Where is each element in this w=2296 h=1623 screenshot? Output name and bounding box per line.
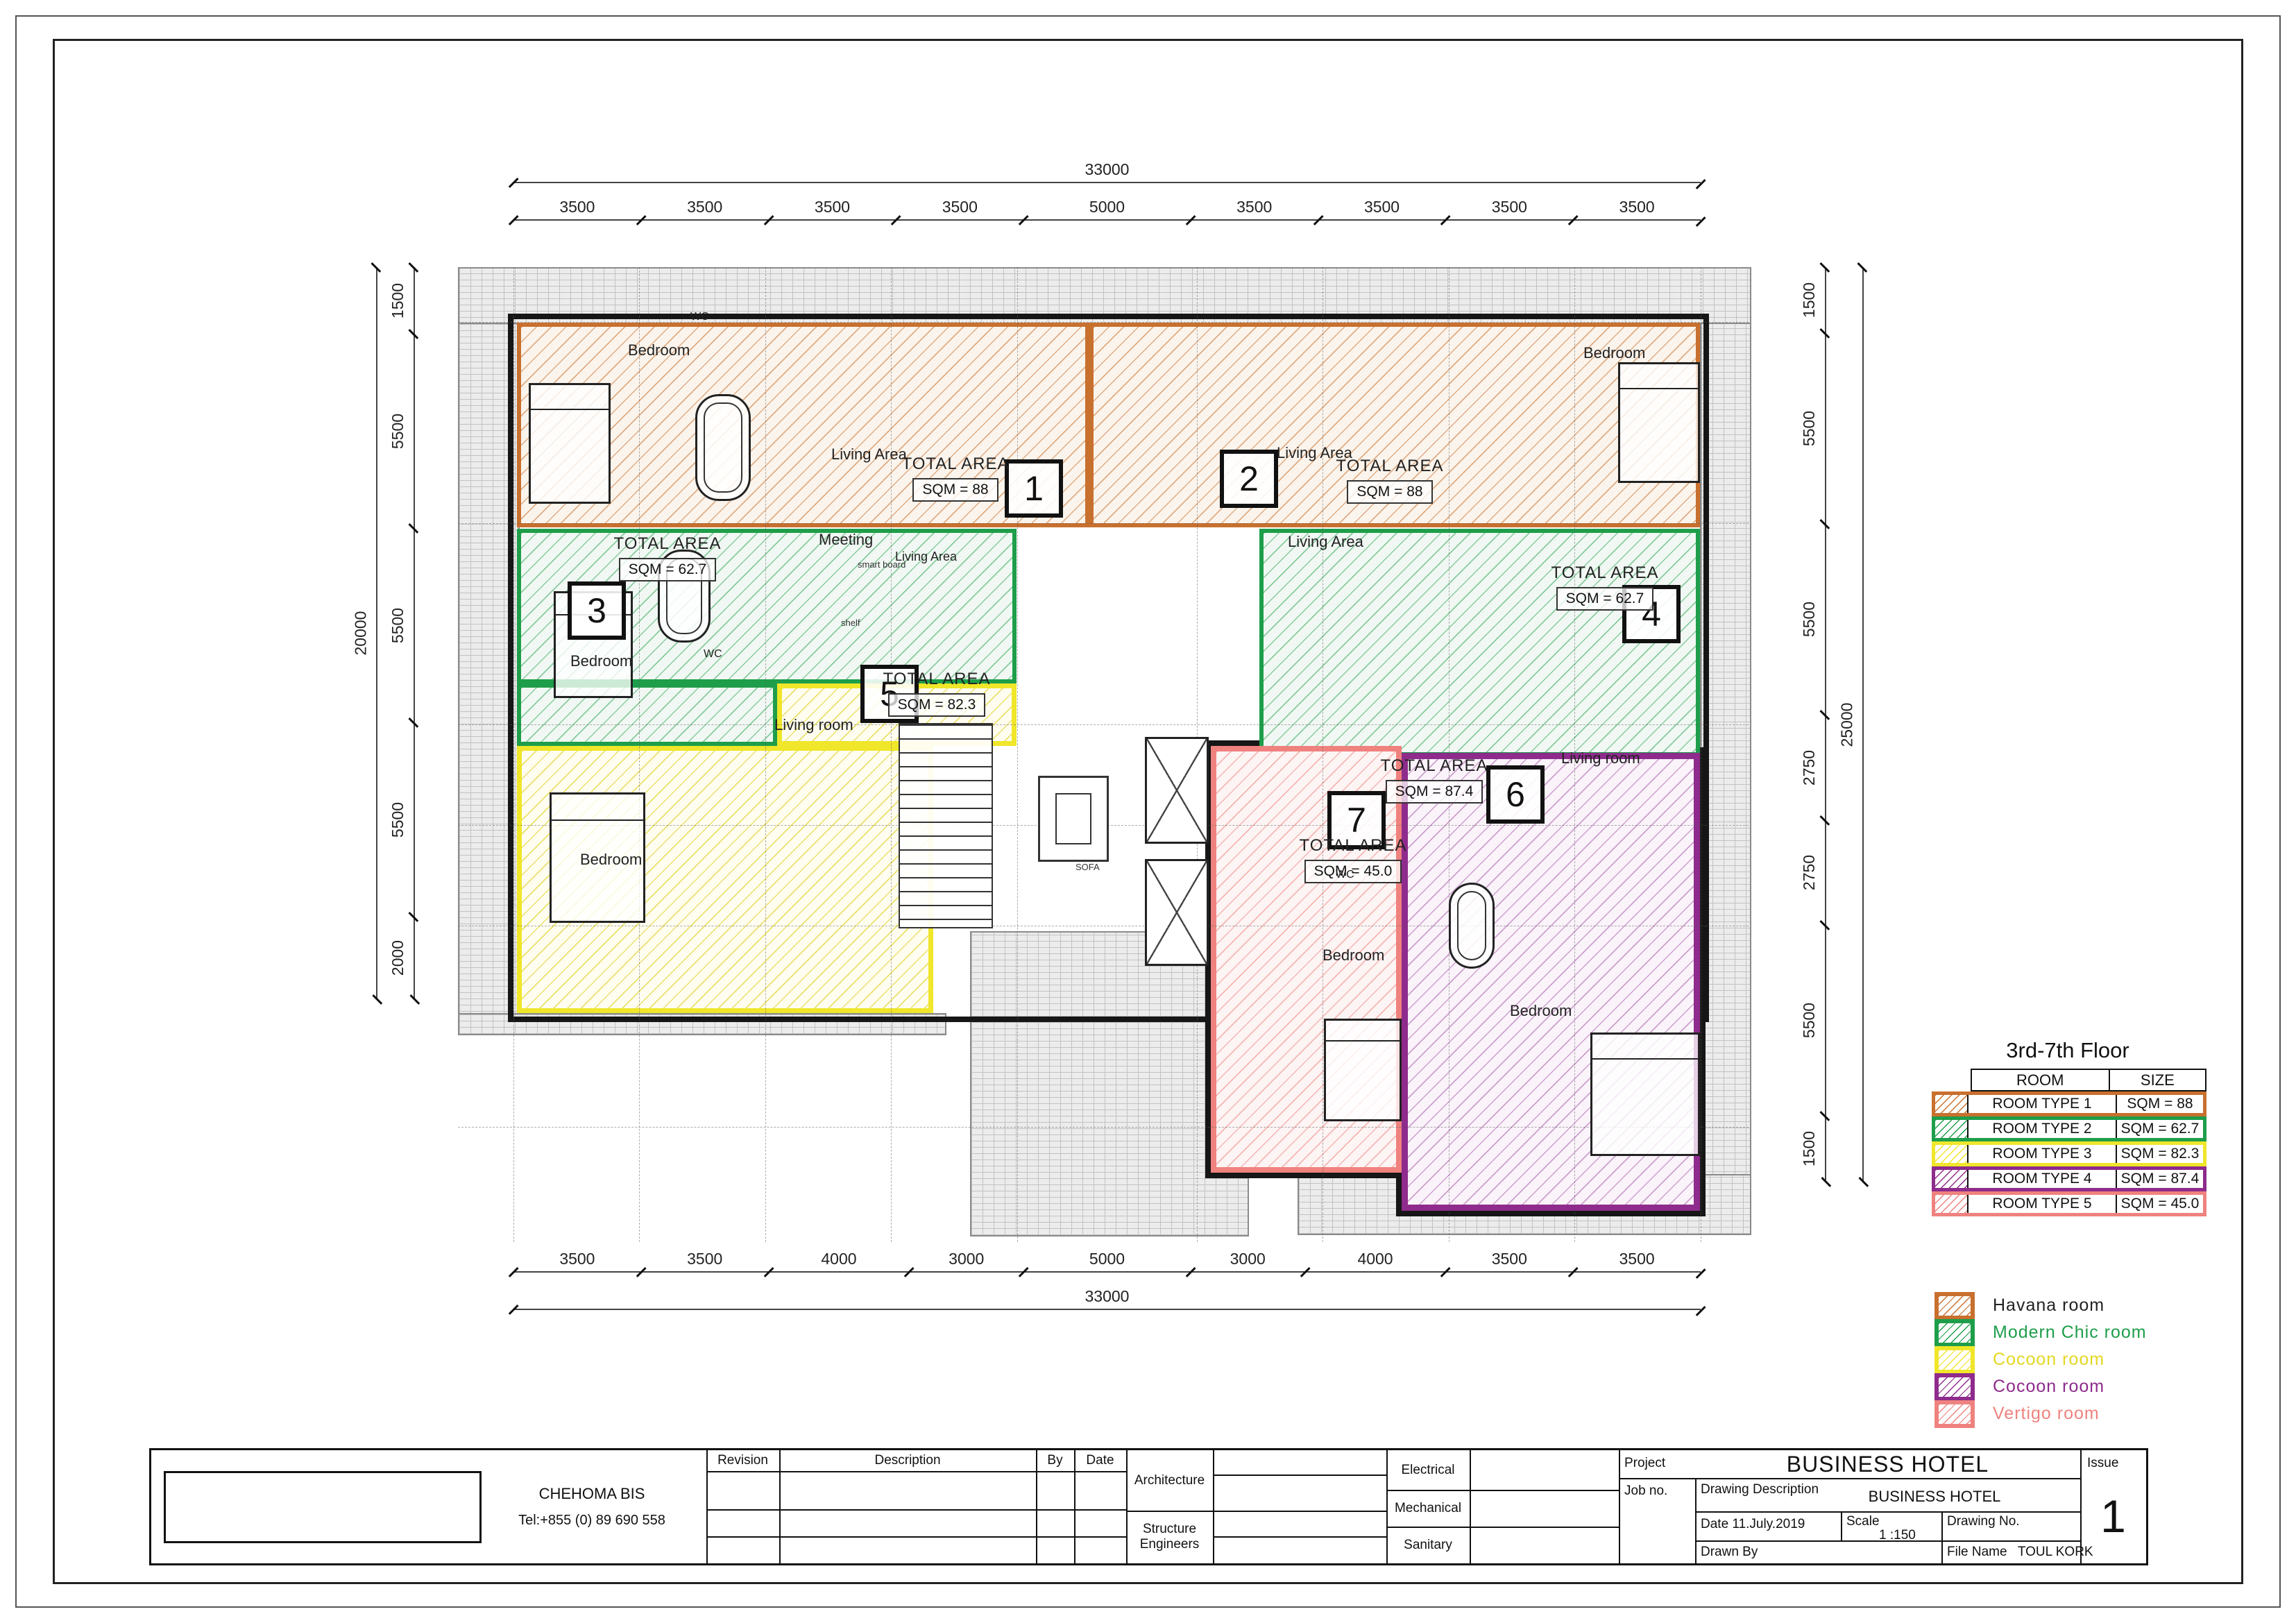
dimension-segment: 5000 <box>1023 196 1191 221</box>
total-area-title: TOTAL AREA <box>1539 563 1671 583</box>
legend-room-type: ROOM TYPE 3 <box>1968 1145 2117 1163</box>
project-label: Project <box>1624 1456 1665 1471</box>
legend-row: ROOM TYPE 4 SQM = 87.4 <box>1932 1166 2206 1191</box>
dimension-segment: 20000 <box>346 267 377 999</box>
total-area-room-1: TOTAL AREA SQM = 88 <box>890 454 1021 502</box>
legend-room-size: SQM = 87.4 <box>2117 1170 2203 1188</box>
roof-canopy-center <box>970 931 1249 1237</box>
total-area-title: TOTAL AREA <box>1368 756 1500 776</box>
sqm-value: SQM = 88 <box>912 478 998 502</box>
room-label: WC <box>690 311 709 323</box>
legend-header-room: ROOM <box>1971 1069 2109 1091</box>
room-size-legend-table: ROOM SIZE ROOM TYPE 1 SQM = 88 ROOM TYPE… <box>1932 1069 2206 1216</box>
dimension-segment: 3500 <box>1573 1248 1701 1273</box>
room-label: Bedroom <box>1583 344 1645 362</box>
date-header: Date <box>1074 1450 1126 1471</box>
dimension-segment: 3500 <box>769 196 896 221</box>
floor-title: 3rd-7th Floor <box>1943 1038 2193 1063</box>
lobby-sofa <box>1038 776 1109 862</box>
room-label: Bedroom <box>1510 1002 1572 1020</box>
room-badge-2: 2 <box>1220 450 1278 508</box>
dimension-segment: 3500 <box>1191 196 1318 221</box>
bathtub <box>695 394 751 501</box>
scale-label: Scale <box>1846 1514 1880 1529</box>
legend-room-type: ROOM TYPE 4 <box>1968 1170 2117 1188</box>
terrace-left <box>458 323 520 1019</box>
dimension-segment: 3500 <box>641 196 769 221</box>
room-label: Living room <box>774 716 853 734</box>
electrical-cell: Electrical <box>1386 1450 1470 1490</box>
room-key-swatch <box>1934 1373 1975 1401</box>
sofa-label: SOFA <box>1075 862 1100 872</box>
dimension-segment: 3500 <box>1445 1248 1573 1273</box>
total-area-room-2: TOTAL AREA SQM = 88 <box>1324 457 1456 504</box>
dimension-segment: 3000 <box>1191 1248 1305 1273</box>
room-label: Bedroom <box>628 341 690 359</box>
dimension-segment: 1500 <box>1794 267 1826 333</box>
bed <box>529 383 611 504</box>
issue-label: Issue <box>2087 1456 2118 1471</box>
sqm-value: SQM = 62.7 <box>1556 587 1654 611</box>
dimension-segment: 3000 <box>909 1248 1023 1273</box>
legend-row: ROOM TYPE 5 SQM = 45.0 <box>1932 1191 2206 1216</box>
legend-hatch-swatch <box>1935 1195 1968 1213</box>
dimension-segment: 5500 <box>1794 925 1826 1116</box>
terrace-bottom-left <box>458 1013 946 1035</box>
dimension-right-segments: 1500550055002750275055001500 <box>1794 267 1826 1182</box>
legend-row: ROOM TYPE 3 SQM = 82.3 <box>1932 1141 2206 1166</box>
description-header: Description <box>779 1450 1036 1471</box>
legend-hatch-swatch <box>1935 1120 1968 1138</box>
room-label: WC <box>1336 869 1354 881</box>
total-area-title: TOTAL AREA <box>871 670 1003 689</box>
scale-value: 1 :150 <box>1879 1528 1916 1543</box>
dimension-right-overall: 25000 <box>1832 267 1864 1182</box>
room-label: Meeting <box>819 531 873 549</box>
dimension-segment: 2750 <box>1794 715 1826 819</box>
dimension-segment: 3500 <box>1445 196 1573 221</box>
drawing-description-value: BUSINESS HOTEL <box>1830 1486 2039 1507</box>
total-area-title: TOTAL AREA <box>602 534 733 554</box>
title-block: CHEHOMA BIS Tel:+855 (0) 89 690 558 Revi… <box>149 1448 2148 1565</box>
dimension-segment: 1500 <box>383 267 415 334</box>
room-key-label: Modern Chic room <box>1993 1323 2147 1343</box>
mechanical-cell: Mechanical <box>1386 1490 1470 1527</box>
date-cell: Date 11.July.2019 <box>1701 1517 1805 1532</box>
total-area-title: TOTAL AREA <box>890 454 1021 474</box>
legend-hatch-swatch <box>1935 1145 1968 1163</box>
legend-room-size: SQM = 88 <box>2117 1095 2203 1113</box>
dimension-segment: 3500 <box>513 1248 641 1273</box>
total-area-room-6: TOTAL AREA SQM = 87.4 <box>1368 756 1500 804</box>
dimension-segment: 5500 <box>1794 524 1826 715</box>
by-header: By <box>1036 1450 1074 1471</box>
legend-room-size: SQM = 62.7 <box>2117 1120 2203 1138</box>
dimension-segment: 5500 <box>383 334 415 528</box>
room-label: Living Area <box>1288 533 1363 551</box>
date-label: Date <box>1701 1517 1728 1531</box>
legend-header-row: ROOM SIZE <box>1932 1069 2206 1091</box>
drawing-sheet: 1 2 3 4 5 6 7 TOTAL AREA SQM = 88 TOTAL … <box>0 0 2296 1623</box>
dimension-top-segments: 350035003500350050003500350035003500 <box>513 196 1701 221</box>
elevator-shaft <box>1145 859 1209 966</box>
dimension-segment: 25000 <box>1832 267 1864 1182</box>
dimension-segment: 3500 <box>1318 196 1446 221</box>
company-block: CHEHOMA BIS Tel:+855 (0) 89 690 558 <box>477 1450 706 1563</box>
legend-row: ROOM TYPE 2 SQM = 62.7 <box>1932 1116 2206 1141</box>
legend-room-size: SQM = 82.3 <box>2117 1145 2203 1163</box>
legend-header-size: SIZE <box>2109 1069 2206 1091</box>
drawing-description-label: Drawing Description <box>1701 1482 1819 1497</box>
total-area-title: TOTAL AREA <box>1287 836 1419 856</box>
room-key-item: Cocoon room <box>1934 1346 2147 1373</box>
dimension-segment: 5500 <box>383 722 415 917</box>
issue-value: 1 <box>2080 1478 2146 1554</box>
terrace-right <box>1700 323 1751 1217</box>
sanitary-cell: Sanitary <box>1386 1527 1470 1563</box>
bathtub <box>1449 883 1495 969</box>
dimension-bottom-overall: 33000 <box>513 1285 1701 1310</box>
room-label: Living room <box>1561 749 1640 767</box>
room-key-swatch <box>1934 1292 1975 1320</box>
room-key-swatch <box>1934 1346 1975 1374</box>
legend-hatch-swatch <box>1935 1095 1968 1113</box>
room-badge-3: 3 <box>568 581 626 640</box>
legend-rows: ROOM TYPE 1 SQM = 88 ROOM TYPE 2 SQM = 6… <box>1932 1091 2206 1216</box>
elevator-shaft <box>1145 737 1209 844</box>
room-key-item: Modern Chic room <box>1934 1319 2147 1346</box>
sqm-value: SQM = 88 <box>1347 480 1432 504</box>
dimension-segment: 1500 <box>1794 1116 1826 1182</box>
revision-header: Revision <box>706 1450 779 1471</box>
architecture-cell: Architecture <box>1126 1450 1213 1511</box>
room-key-label: Cocoon room <box>1993 1377 2104 1397</box>
room-label: WC <box>704 648 722 661</box>
room-key-label: Vertigo room <box>1993 1404 2100 1424</box>
room-label: Living Area <box>1277 444 1352 462</box>
dimension-segment: 3500 <box>1573 196 1701 221</box>
room-label: Living Area <box>831 445 907 464</box>
dimension-segment: 4000 <box>1305 1248 1446 1273</box>
annotation-label: smart board <box>858 559 905 570</box>
project-name: BUSINESS HOTEL <box>1695 1450 2080 1478</box>
dimension-segment: 3500 <box>641 1248 769 1273</box>
dimension-segment: 3500 <box>896 196 1023 221</box>
room-key-label: Havana room <box>1993 1295 2104 1316</box>
legend-room-type: ROOM TYPE 5 <box>1968 1195 2117 1213</box>
company-name: CHEHOMA BIS <box>539 1485 645 1503</box>
file-name-label: File Name <box>1947 1545 2007 1559</box>
total-area-room-3: TOTAL AREA SQM = 62.7 <box>602 534 733 581</box>
annotation-label: shelf <box>841 618 860 628</box>
file-name-cell: File Name TOUL KORK <box>1947 1545 2093 1560</box>
structure-engineers-cell: Structure Engineers <box>1126 1511 1213 1563</box>
dimension-segment: 5500 <box>383 528 415 722</box>
sqm-value: SQM = 62.7 <box>619 558 717 581</box>
legend-room-type: ROOM TYPE 1 <box>1968 1095 2117 1113</box>
sqm-value: SQM = 82.3 <box>888 693 986 717</box>
drawing-no-label: Drawing No. <box>1947 1514 2020 1529</box>
legend-room-size: SQM = 45.0 <box>2117 1195 2203 1213</box>
dimension-segment: 5500 <box>1794 333 1826 524</box>
dimension-left-segments: 15005500550055002000 <box>383 267 415 999</box>
dimension-bottom-segments: 350035004000300050003000400035003500 <box>513 1248 1701 1273</box>
room-label: Bedroom <box>580 851 642 869</box>
bed <box>1618 362 1700 483</box>
date-value: 11.July.2019 <box>1732 1517 1805 1531</box>
room-label: Bedroom <box>1323 946 1384 965</box>
dimension-segment: 3500 <box>513 196 641 221</box>
room-key-label: Cocoon room <box>1993 1350 2104 1370</box>
room-key-item: Havana room <box>1934 1292 2147 1319</box>
dimension-segment: 5000 <box>1023 1248 1191 1273</box>
terrace-top <box>458 267 1751 325</box>
sqm-value: SQM = 87.4 <box>1386 780 1483 804</box>
dimension-segment: 2000 <box>383 917 415 999</box>
total-area-room-4: TOTAL AREA SQM = 62.7 <box>1539 563 1671 611</box>
company-tel: Tel:+855 (0) 89 690 558 <box>518 1513 665 1529</box>
dimension-segment: 33000 <box>513 158 1701 183</box>
dimension-left-overall: 20000 <box>346 267 377 999</box>
staircase <box>899 723 993 928</box>
room-key-item: Cocoon room <box>1934 1373 2147 1400</box>
room-key-swatch <box>1934 1400 1975 1428</box>
logo-box <box>164 1471 482 1543</box>
room-label: Bedroom <box>570 652 632 670</box>
bed <box>1590 1033 1700 1156</box>
legend-room-type: ROOM TYPE 2 <box>1968 1120 2117 1138</box>
dimension-segment: 4000 <box>769 1248 910 1273</box>
dimension-segment: 33000 <box>513 1285 1701 1310</box>
job-no-label: Job no. <box>1624 1484 1687 1499</box>
dimension-top-overall: 33000 <box>513 158 1701 183</box>
legend-hatch-swatch <box>1935 1170 1968 1188</box>
drawn-by-label: Drawn By <box>1701 1545 1758 1560</box>
room-key-item: Vertigo room <box>1934 1400 2147 1427</box>
room-key-swatch <box>1934 1319 1975 1347</box>
total-area-room-5: TOTAL AREA SQM = 82.3 <box>871 670 1003 717</box>
room-color-key: Havana room Modern Chic room Cocoon room… <box>1934 1292 2147 1427</box>
dimension-segment: 2750 <box>1794 820 1826 925</box>
legend-header-spacer <box>1932 1069 1971 1091</box>
bed <box>1324 1019 1402 1121</box>
legend-row: ROOM TYPE 1 SQM = 88 <box>1932 1091 2206 1116</box>
